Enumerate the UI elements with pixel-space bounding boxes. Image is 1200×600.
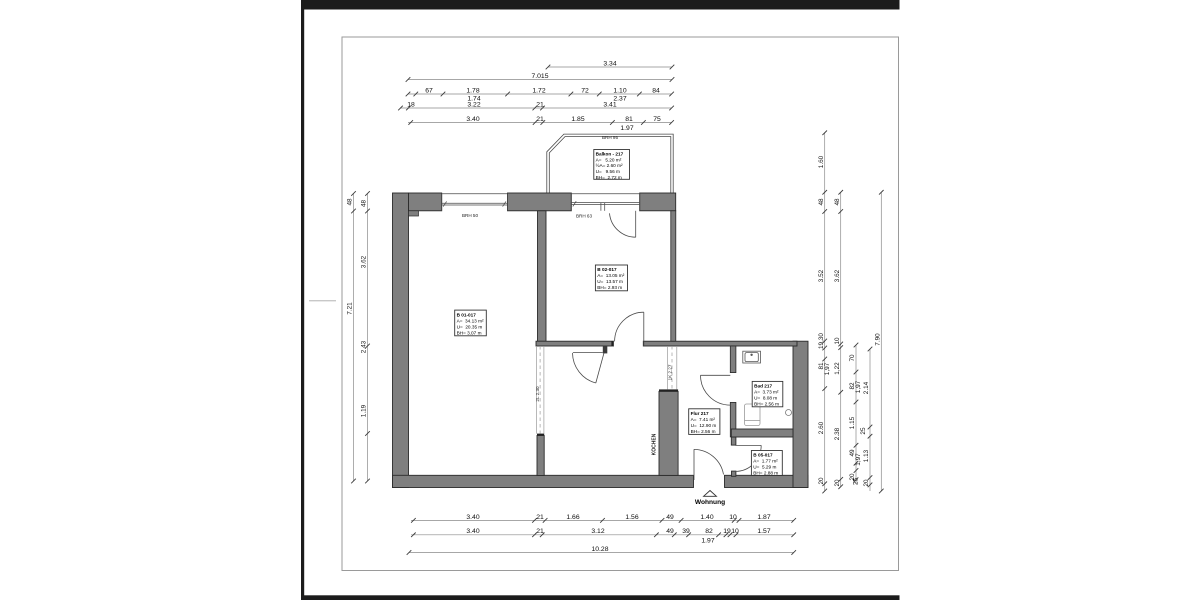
svg-text:U= 20.35 m: U= 20.35 m — [457, 324, 483, 329]
svg-text:75: 75 — [653, 116, 661, 123]
svg-text:3.62: 3.62 — [361, 255, 368, 268]
svg-text:20: 20 — [818, 477, 825, 485]
svg-text:3.62: 3.62 — [834, 269, 841, 282]
svg-text:1.85: 1.85 — [571, 116, 584, 123]
svg-text:BRH 50: BRH 50 — [462, 213, 479, 218]
svg-text:48: 48 — [834, 198, 841, 206]
svg-text:Bad 217: Bad 217 — [754, 384, 772, 389]
svg-text:18: 18 — [407, 101, 415, 108]
svg-text:1.10: 1.10 — [613, 87, 626, 94]
svg-text:U= 12.90 m: U= 12.90 m — [691, 423, 717, 428]
svg-text:BRH 63: BRH 63 — [576, 214, 593, 219]
svg-text:2.38: 2.38 — [834, 427, 841, 440]
svg-text:A= 5.20 m²: A= 5.20 m² — [596, 157, 622, 162]
svg-text:2L 2.30: 2L 2.30 — [535, 386, 540, 402]
svg-text:10: 10 — [731, 528, 739, 535]
svg-text:A= 3.73 m²: A= 3.73 m² — [754, 390, 779, 395]
svg-text:21: 21 — [536, 101, 544, 108]
svg-text:21: 21 — [536, 528, 544, 535]
svg-text:39: 39 — [682, 528, 690, 535]
svg-text:1.97: 1.97 — [620, 125, 633, 132]
svg-text:72: 72 — [581, 87, 589, 94]
svg-text:7.015: 7.015 — [531, 73, 548, 80]
svg-text:3.22: 3.22 — [467, 101, 480, 108]
svg-text:48: 48 — [818, 198, 825, 206]
svg-text:10: 10 — [834, 337, 841, 345]
svg-text:2.14: 2.14 — [863, 381, 870, 394]
svg-text:1.57: 1.57 — [757, 528, 770, 535]
svg-text:BH= 2.56 m: BH= 2.56 m — [754, 402, 779, 407]
svg-text:2.43: 2.43 — [361, 340, 368, 353]
svg-text:1,22: 1,22 — [834, 362, 841, 375]
svg-text:A= 13.05 m²: A= 13.05 m² — [597, 273, 624, 278]
svg-text:48: 48 — [347, 198, 354, 206]
svg-text:1.60: 1.60 — [818, 155, 825, 168]
svg-text:21: 21 — [536, 116, 544, 123]
svg-text:10: 10 — [729, 514, 737, 521]
svg-text:20: 20 — [834, 479, 841, 487]
svg-text:1.15: 1.15 — [849, 416, 856, 429]
svg-text:1,97: 1,97 — [824, 362, 831, 375]
svg-text:1.87: 1.87 — [757, 514, 770, 521]
svg-text:1.40: 1.40 — [700, 514, 713, 521]
svg-text:U= 5.29 m: U= 5.29 m — [753, 465, 776, 470]
svg-text:7.21: 7.21 — [347, 302, 354, 315]
svg-text:7.90: 7.90 — [875, 333, 882, 346]
svg-text:BH= 3.07 m: BH= 3.07 m — [457, 330, 482, 335]
svg-text:20: 20 — [863, 479, 870, 487]
svg-text:1.97: 1.97 — [701, 538, 714, 545]
svg-text:BH= 2.56 m: BH= 2.56 m — [691, 429, 716, 434]
svg-text:21: 21 — [536, 514, 544, 521]
svg-text:1,97: 1,97 — [855, 380, 862, 393]
svg-text:BH= 2.88 m: BH= 2.88 m — [753, 471, 778, 476]
svg-text:Flur 217: Flur 217 — [691, 411, 709, 416]
svg-text:1.13: 1.13 — [863, 449, 870, 462]
svg-text:1.78: 1.78 — [466, 87, 479, 94]
svg-text:1.19: 1.19 — [361, 404, 368, 417]
svg-text:81: 81 — [625, 116, 633, 123]
svg-text:10.28: 10.28 — [591, 546, 608, 553]
svg-text:1.66: 1.66 — [566, 514, 579, 521]
svg-text:B 01-017: B 01-017 — [457, 312, 477, 317]
svg-text:KOCHEN: KOCHEN — [652, 433, 658, 455]
svg-text:3.12: 3.12 — [591, 528, 604, 535]
svg-text:½A= 2.60 m²: ½A= 2.60 m² — [596, 162, 623, 168]
svg-text:U= 9.56 m: U= 9.56 m — [596, 169, 620, 174]
svg-text:49: 49 — [666, 514, 674, 521]
svg-text:1,97: 1,97 — [855, 453, 862, 466]
svg-text:3.40: 3.40 — [466, 514, 479, 521]
svg-text:67: 67 — [425, 87, 433, 94]
svg-text:70: 70 — [849, 354, 856, 362]
svg-text:1.56: 1.56 — [625, 514, 638, 521]
svg-text:B 05-017: B 05-017 — [753, 453, 773, 458]
svg-text:48: 48 — [361, 200, 368, 208]
svg-text:3.40: 3.40 — [466, 116, 479, 123]
svg-text:84: 84 — [652, 87, 660, 94]
svg-text:U= 8.08 m: U= 8.08 m — [754, 396, 777, 401]
svg-text:BRH 95: BRH 95 — [602, 135, 619, 140]
svg-text:2.60: 2.60 — [818, 421, 825, 434]
svg-text:U= 13.57 m: U= 13.57 m — [597, 279, 623, 284]
svg-text:Wohnung: Wohnung — [695, 499, 725, 506]
svg-text:3.34: 3.34 — [603, 60, 616, 67]
svg-text:A= 34.13 m²: A= 34.13 m² — [457, 318, 484, 323]
svg-text:49: 49 — [666, 528, 674, 535]
svg-text:25: 25 — [852, 478, 859, 486]
svg-text:BH= 2.93 m: BH= 2.93 m — [597, 285, 622, 290]
svg-text:3.40: 3.40 — [466, 528, 479, 535]
svg-text:19,30: 19,30 — [818, 333, 825, 349]
svg-text:Balkon - 217: Balkon - 217 — [596, 152, 624, 157]
svg-text:A= 7.41 m²: A= 7.41 m² — [691, 417, 716, 422]
svg-text:3.52: 3.52 — [818, 269, 825, 282]
svg-text:BH= 2.72 m: BH= 2.72 m — [596, 175, 622, 180]
svg-text:B 02-017: B 02-017 — [597, 267, 617, 272]
svg-text:1.72: 1.72 — [532, 87, 545, 94]
svg-text:19: 19 — [723, 528, 731, 535]
svg-text:25: 25 — [860, 427, 867, 435]
svg-text:A= 1.77 m²: A= 1.77 m² — [753, 459, 778, 464]
svg-text:3.41: 3.41 — [603, 101, 616, 108]
svg-text:1K 2.27: 1K 2.27 — [668, 364, 673, 380]
svg-text:82: 82 — [705, 528, 713, 535]
